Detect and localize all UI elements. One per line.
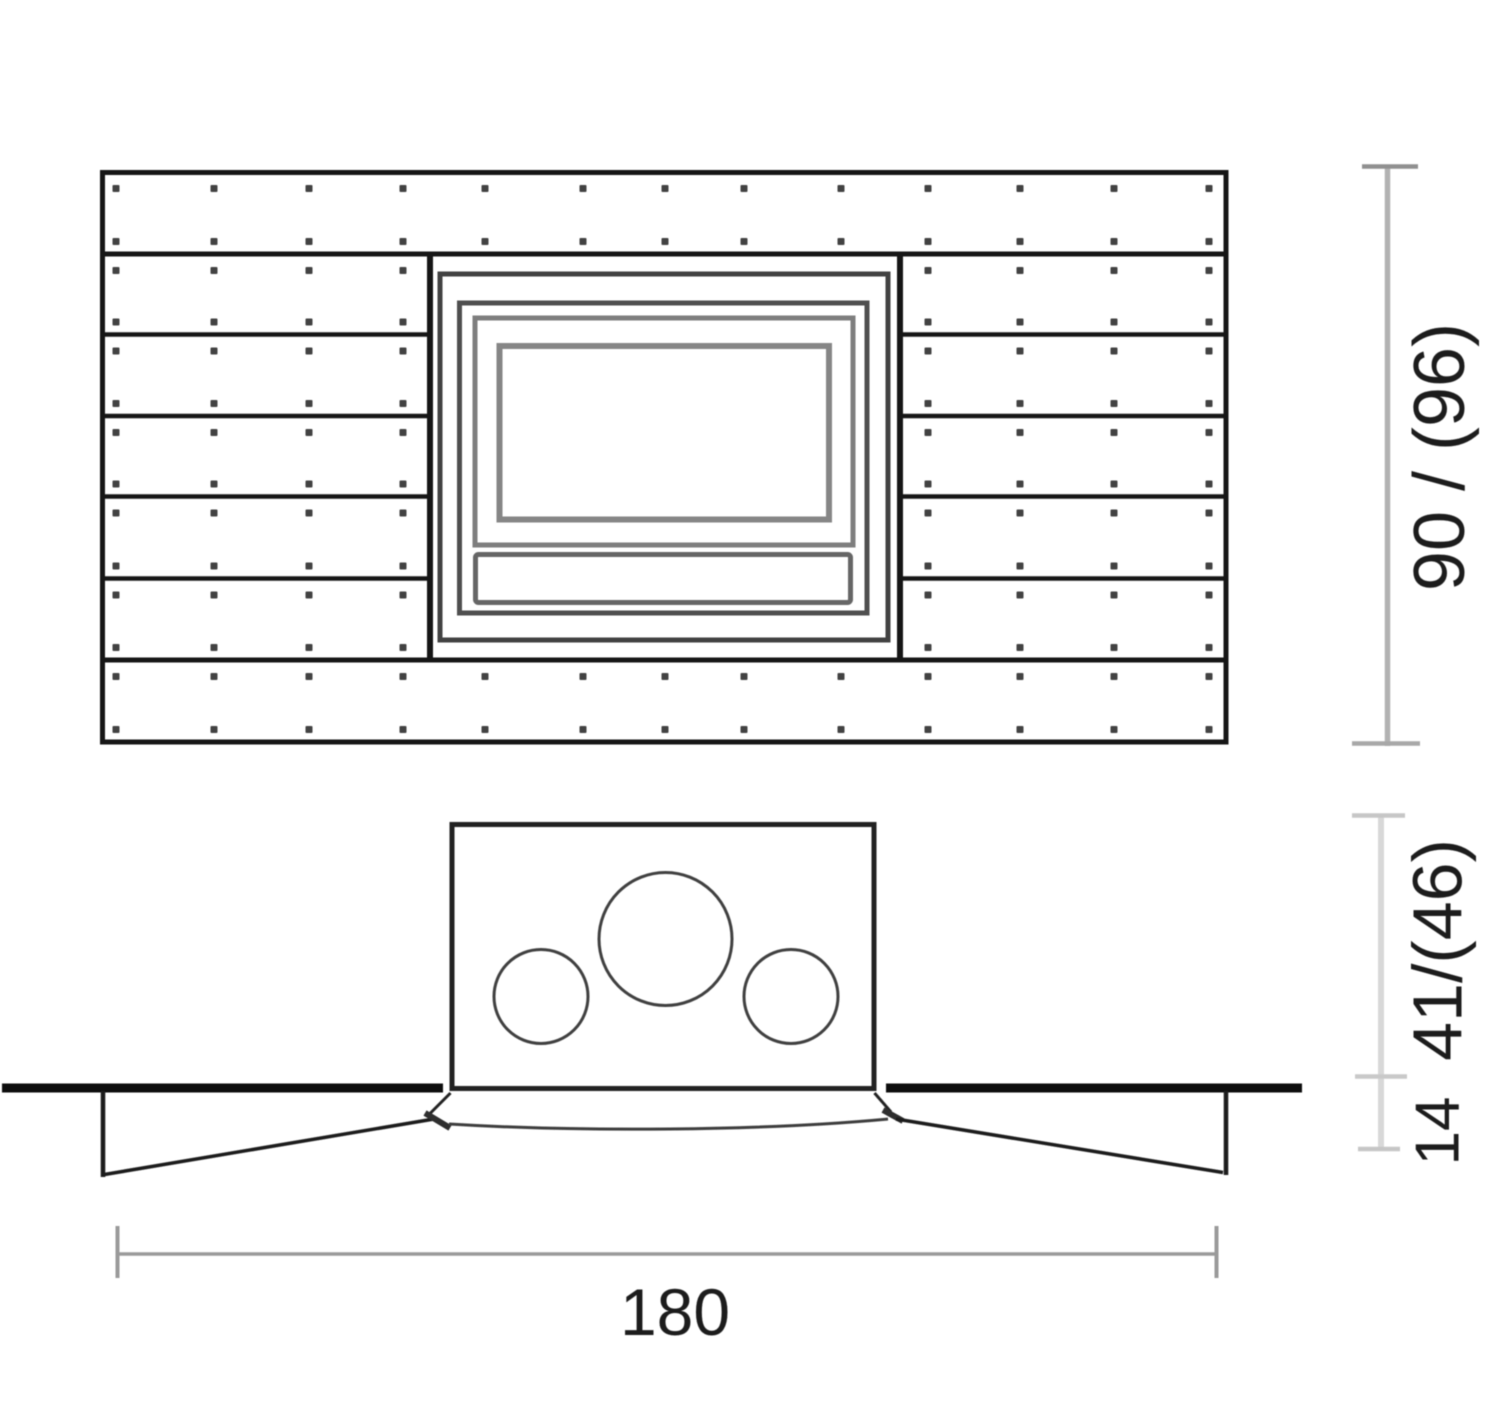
svg-text:41/(46): 41/(46) <box>1399 839 1477 1061</box>
svg-text:180: 180 <box>620 1275 730 1349</box>
svg-text:90 / (96): 90 / (96) <box>1400 323 1480 591</box>
svg-text:14: 14 <box>1404 1097 1473 1166</box>
